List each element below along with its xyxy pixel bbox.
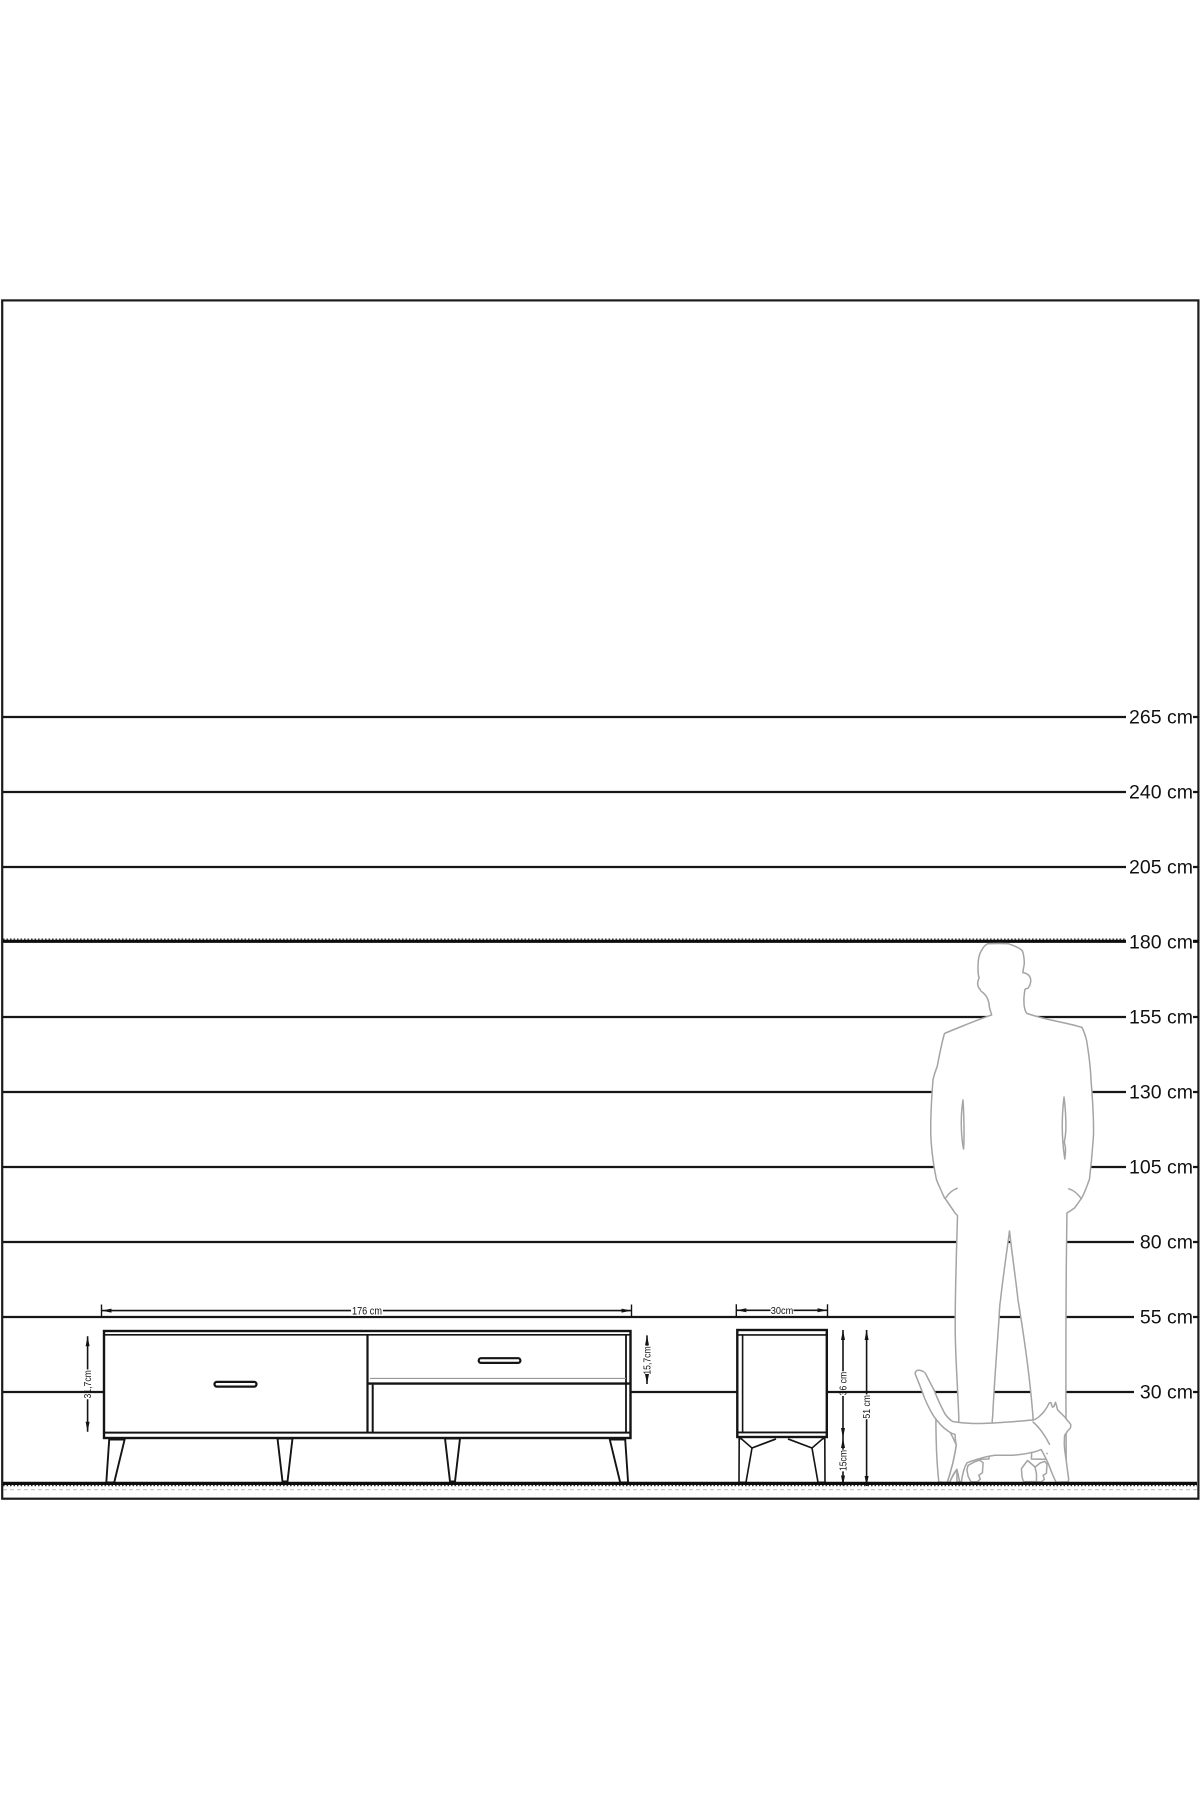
svg-text:205 cm: 205 cm — [1129, 857, 1193, 879]
svg-text:15cm: 15cm — [838, 1450, 850, 1471]
svg-text:176 cm: 176 cm — [352, 1305, 382, 1317]
svg-text:155 cm: 155 cm — [1129, 1007, 1193, 1029]
svg-text:180 cm: 180 cm — [1129, 932, 1193, 954]
svg-text:240 cm: 240 cm — [1129, 782, 1193, 804]
svg-text:51 cm: 51 cm — [861, 1395, 873, 1419]
svg-text:31,7cm: 31,7cm — [83, 1370, 94, 1398]
svg-text:55 cm: 55 cm — [1140, 1307, 1193, 1329]
svg-text:265 cm: 265 cm — [1129, 707, 1193, 729]
svg-text:80 cm: 80 cm — [1140, 1232, 1193, 1254]
svg-text:15,7cm: 15,7cm — [643, 1346, 654, 1374]
svg-text:130 cm: 130 cm — [1129, 1082, 1193, 1104]
svg-text:36 cm: 36 cm — [838, 1372, 850, 1396]
svg-text:105 cm: 105 cm — [1129, 1157, 1193, 1179]
svg-text:30cm: 30cm — [771, 1305, 794, 1317]
svg-text:30 cm: 30 cm — [1140, 1382, 1193, 1404]
